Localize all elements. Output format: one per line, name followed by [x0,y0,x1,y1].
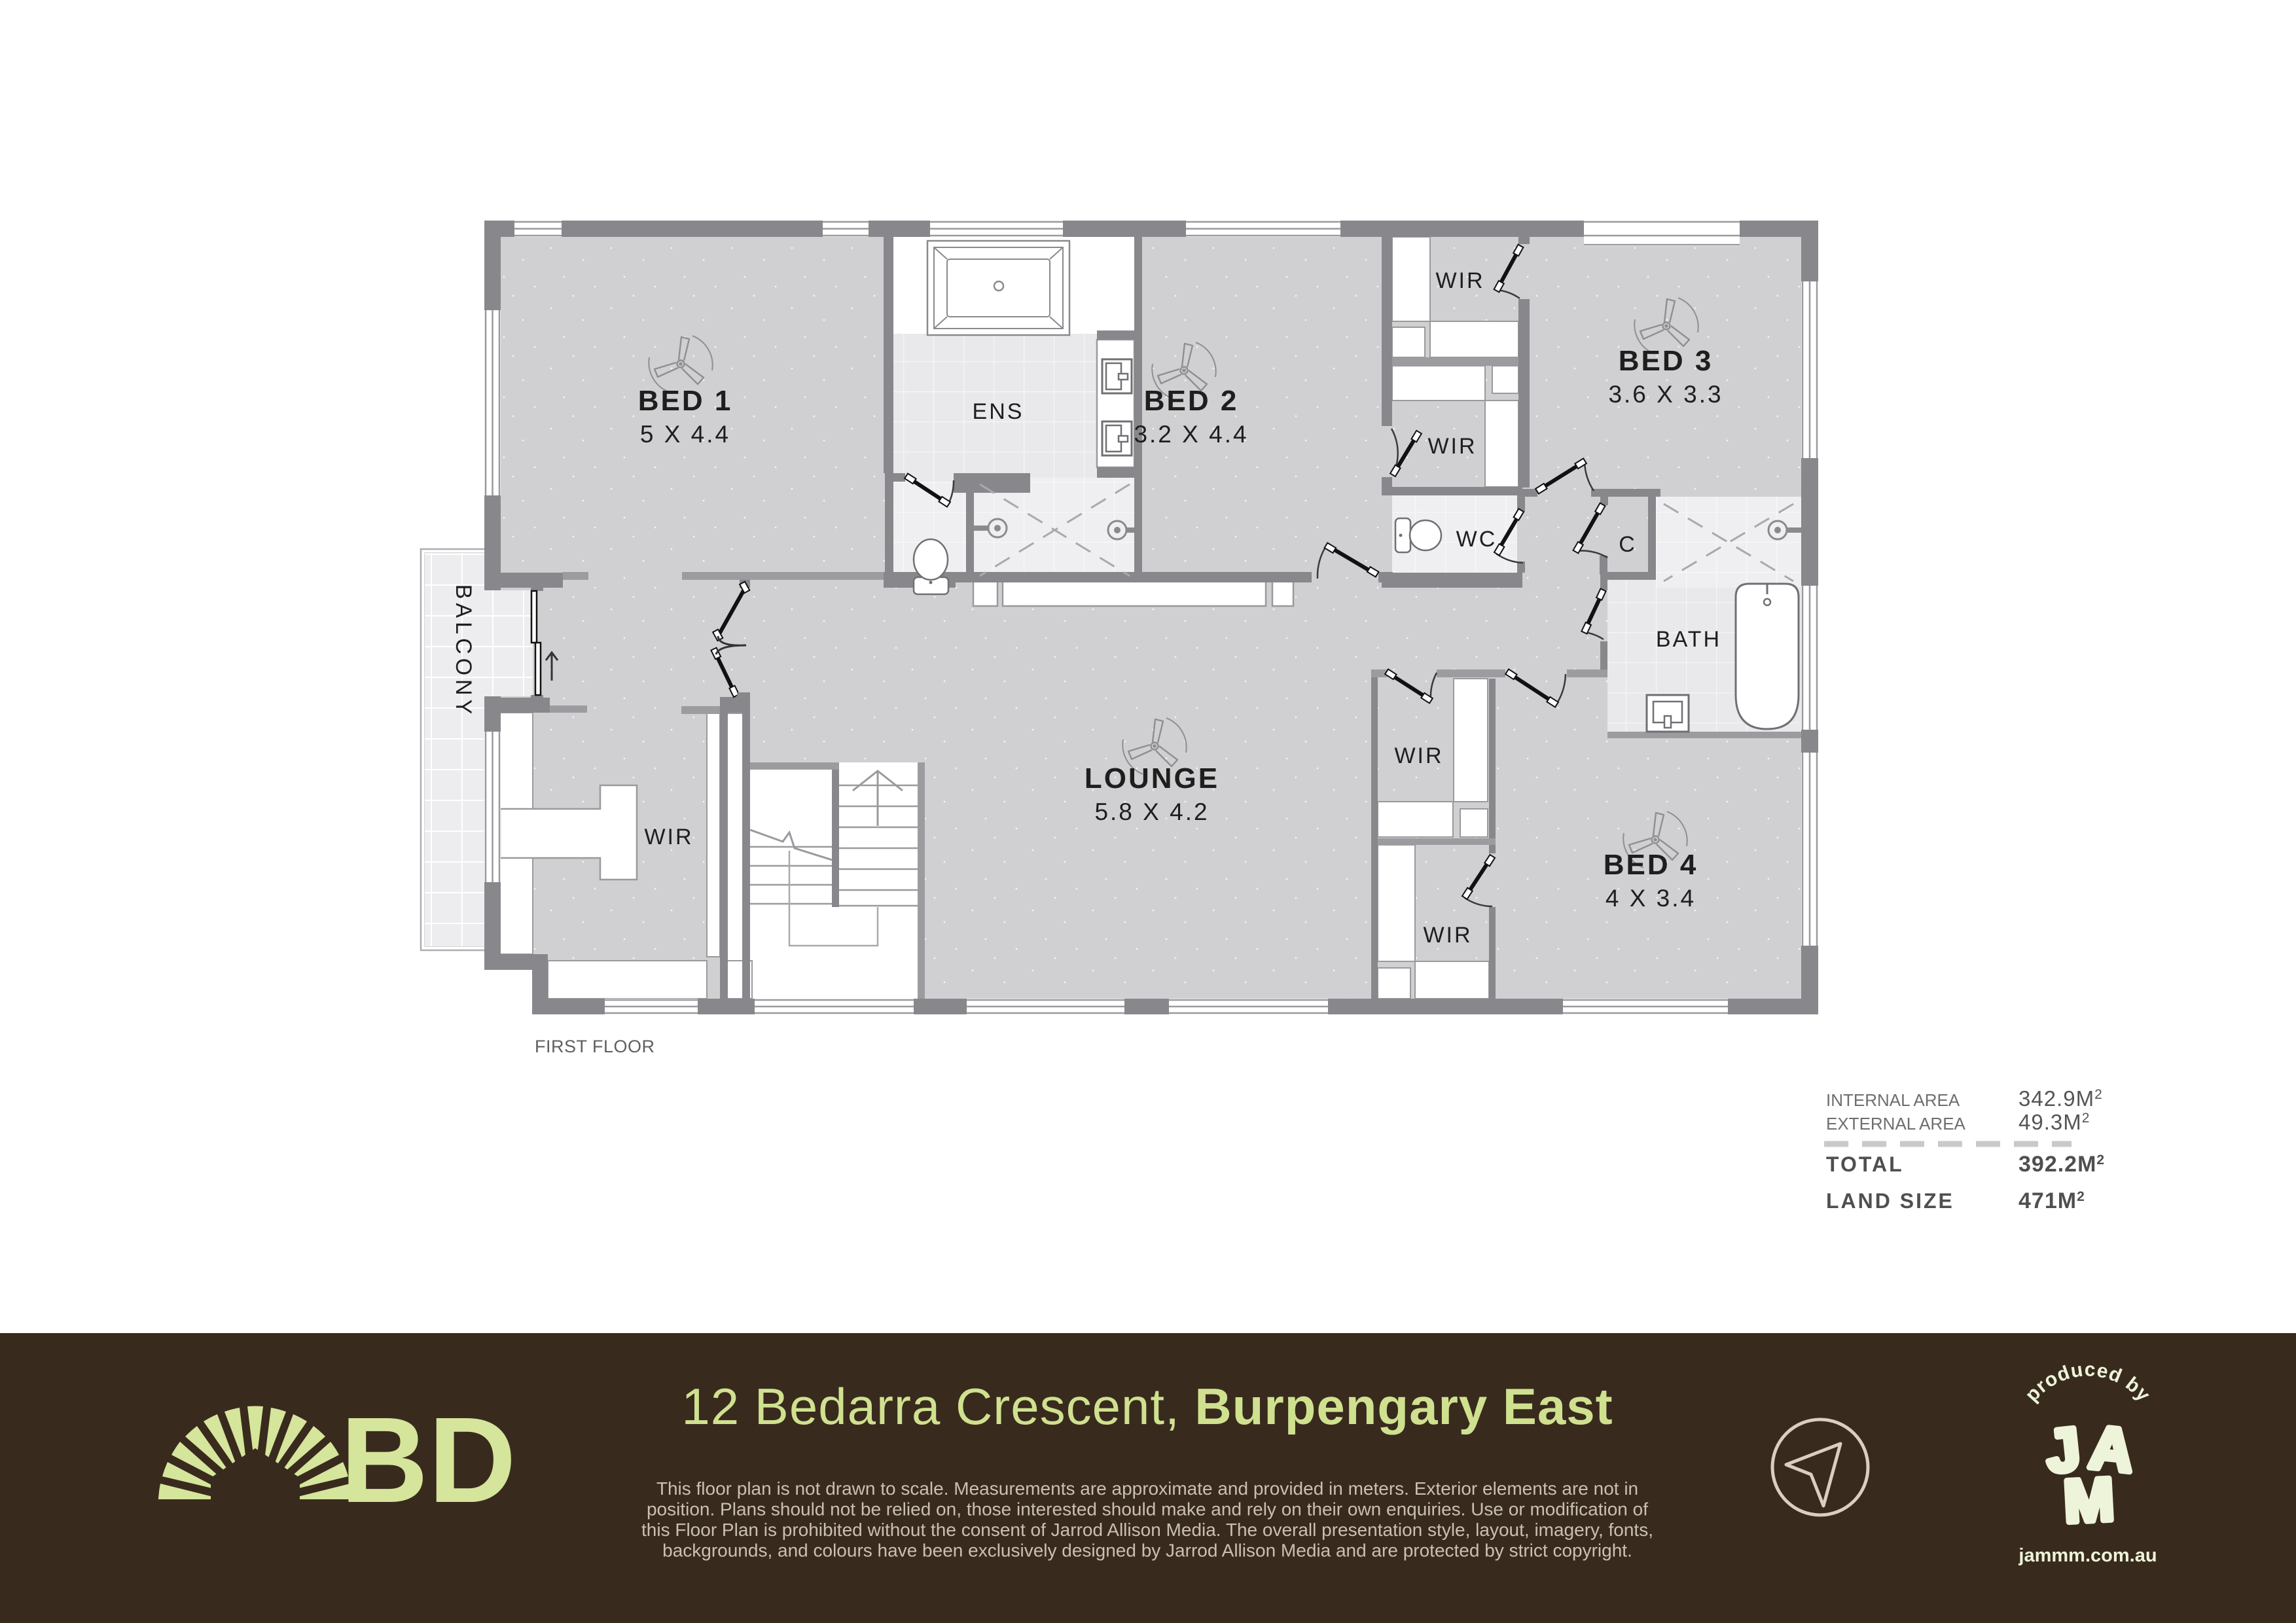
svg-text:jammm.com.au: jammm.com.au [2018,1545,2157,1566]
svg-text:3.6 X 3.3: 3.6 X 3.3 [1608,381,1723,408]
svg-text:LOUNGE: LOUNGE [1085,762,1219,794]
svg-text:TOTAL: TOTAL [1826,1152,1904,1176]
svg-text:C: C [1619,532,1637,557]
svg-text:WIR: WIR [644,825,693,849]
svg-text:position. Plans should not be: position. Plans should not be relied on,… [647,1499,1648,1520]
svg-text:BALCONY: BALCONY [451,584,476,719]
svg-text:4 X 3.4: 4 X 3.4 [1605,885,1696,912]
svg-text:49.3M2: 49.3M2 [2018,1110,2090,1134]
svg-text:BED 3: BED 3 [1619,345,1713,377]
svg-text:WC: WC [1456,527,1498,552]
svg-text:BED 4: BED 4 [1604,849,1698,881]
svg-text:WIR: WIR [1435,268,1484,293]
svg-text:342.9M2: 342.9M2 [2018,1086,2103,1111]
svg-text:this Floor Plan is prohibited: this Floor Plan is prohibited without th… [641,1520,1653,1540]
svg-text:backgrounds, and colours have: backgrounds, and colours have been exclu… [662,1541,1632,1561]
svg-text:12 Bedarra Crescent, Burpengar: 12 Bedarra Crescent, Burpengary East [681,1378,1613,1435]
svg-text:BATH: BATH [1656,627,1721,652]
svg-text:5.8 X 4.2: 5.8 X 4.2 [1094,798,1209,825]
svg-text:ENS: ENS [973,399,1024,424]
svg-text:WIR: WIR [1427,434,1477,459]
svg-text:EXTERNAL AREA: EXTERNAL AREA [1826,1114,1966,1133]
svg-text:This floor plan is not drawn t: This floor plan is not drawn to scale. M… [656,1478,1638,1499]
svg-text:BED 2: BED 2 [1144,385,1239,417]
svg-text:BED 1: BED 1 [638,385,733,417]
svg-text:BD: BD [340,1393,516,1528]
svg-text:WIR: WIR [1394,743,1443,768]
svg-text:5 X 4.4: 5 X 4.4 [640,421,730,448]
svg-text:LAND SIZE: LAND SIZE [1826,1189,1954,1213]
svg-text:3.2 X 4.4: 3.2 X 4.4 [1134,421,1248,448]
svg-text:FIRST FLOOR: FIRST FLOOR [535,1037,655,1056]
svg-text:471M2: 471M2 [2018,1188,2085,1213]
svg-text:392.2M2: 392.2M2 [2018,1152,2105,1177]
svg-text:INTERNAL AREA: INTERNAL AREA [1826,1090,1960,1110]
svg-text:M: M [2062,1466,2116,1535]
svg-text:WIR: WIR [1423,923,1472,948]
